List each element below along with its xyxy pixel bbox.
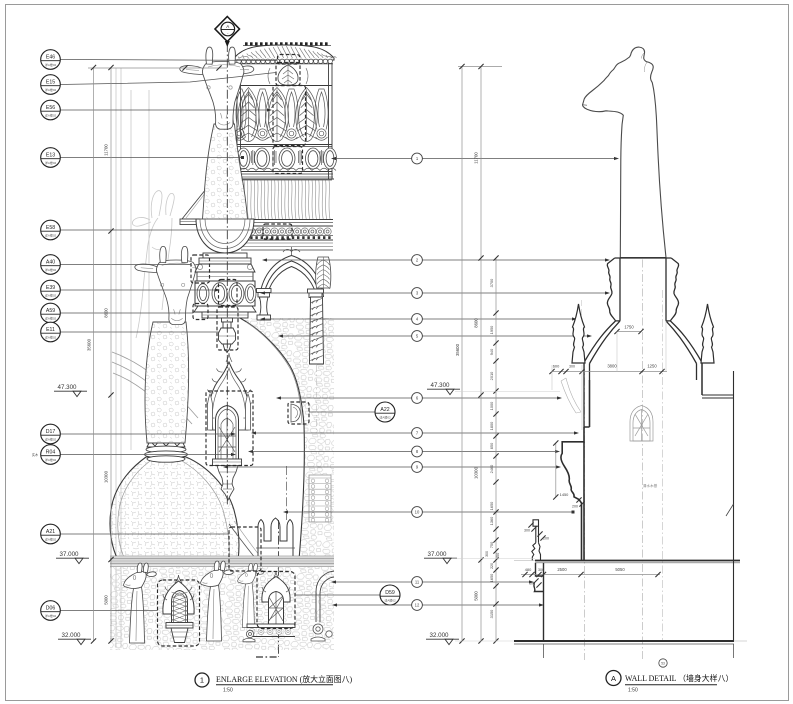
svg-text:A21: A21 [46, 529, 55, 535]
svg-text:10300: 10300 [474, 466, 479, 479]
svg-text:A40: A40 [46, 259, 55, 265]
svg-text:2010: 2010 [489, 371, 494, 380]
svg-text:详A楼02: 详A楼02 [45, 112, 57, 117]
svg-text:详A楼02: 详A楼02 [45, 613, 57, 618]
svg-text:详A楼02: 详A楼02 [379, 414, 391, 419]
svg-text:D17: D17 [46, 429, 56, 435]
svg-text:E46: E46 [46, 54, 55, 60]
svg-text:清水木基: 清水木基 [643, 483, 658, 488]
svg-text:详A楼02: 详A楼02 [45, 87, 57, 92]
svg-text:8600: 8600 [474, 318, 479, 328]
svg-text:12: 12 [415, 603, 420, 608]
svg-text:53: 53 [661, 662, 665, 666]
svg-text:详A楼02: 详A楼02 [45, 334, 57, 339]
svg-text:A22: A22 [380, 407, 389, 413]
svg-text:详A楼02: 详A楼02 [45, 267, 57, 272]
svg-text:32.000: 32.000 [62, 632, 81, 639]
svg-text:300: 300 [485, 551, 489, 557]
svg-text:300: 300 [524, 529, 530, 533]
svg-text:1450: 1450 [560, 492, 569, 497]
svg-text:实木: 实木 [32, 452, 39, 457]
svg-text:2460: 2460 [489, 464, 494, 473]
svg-text:11: 11 [415, 580, 420, 585]
svg-text:详A楼02: 详A楼02 [45, 160, 57, 165]
svg-text:详A楼02: 详A楼02 [45, 315, 57, 320]
svg-text:E56: E56 [46, 105, 55, 111]
svg-text:详A楼02: 详A楼02 [45, 232, 57, 237]
svg-text:1250: 1250 [647, 364, 657, 369]
svg-text:D59: D59 [385, 590, 395, 596]
svg-text:47.300: 47.300 [58, 384, 77, 391]
svg-text:1:50: 1:50 [223, 688, 233, 694]
svg-text:E39: E39 [46, 285, 55, 291]
svg-text:35600: 35600 [455, 343, 460, 356]
svg-text:32.000: 32.000 [430, 632, 449, 639]
svg-text:8600: 8600 [104, 308, 109, 318]
svg-text:1650: 1650 [489, 501, 494, 510]
svg-text:详A楼02: 详A楼02 [45, 436, 57, 441]
svg-text:R04: R04 [46, 449, 56, 455]
svg-text:480: 480 [525, 567, 532, 572]
svg-text:1950: 1950 [489, 325, 494, 334]
svg-text:详A楼02: 详A楼02 [45, 62, 57, 67]
svg-text:3150: 3150 [489, 609, 494, 618]
svg-text:200: 200 [572, 505, 578, 509]
svg-text:A59: A59 [46, 308, 55, 314]
svg-text:11700: 11700 [104, 144, 109, 156]
svg-text:WALL DETAIL （墙身大样八）: WALL DETAIL （墙身大样八） [625, 673, 733, 683]
svg-text:5050: 5050 [615, 567, 625, 572]
svg-text:E58: E58 [46, 225, 55, 231]
svg-text:详A楼02: 详A楼02 [384, 597, 396, 602]
svg-text:5000: 5000 [474, 591, 479, 601]
svg-text:940: 940 [489, 348, 494, 355]
svg-text:1800: 1800 [489, 421, 494, 430]
svg-text:450: 450 [495, 552, 500, 559]
svg-text:E13: E13 [46, 152, 55, 158]
svg-text:E15: E15 [46, 79, 55, 85]
svg-text:600: 600 [553, 364, 560, 369]
svg-text:47.300: 47.300 [431, 382, 450, 389]
svg-text:11700: 11700 [474, 152, 479, 164]
svg-text:850: 850 [489, 442, 494, 449]
svg-text:300: 300 [569, 365, 575, 369]
svg-text:220: 220 [490, 563, 494, 569]
svg-text:2500: 2500 [557, 567, 567, 572]
svg-text:35600: 35600 [87, 338, 92, 351]
svg-text:1: 1 [200, 676, 204, 685]
svg-text:750: 750 [489, 541, 494, 548]
svg-text:3700: 3700 [489, 278, 494, 287]
svg-text:5000: 5000 [104, 595, 109, 605]
svg-text:A: A [226, 24, 229, 29]
svg-text:详A楼02: 详A楼02 [45, 292, 57, 297]
svg-text:ENLARGE ELEVATION (放大立面图八): ENLARGE ELEVATION (放大立面图八) [216, 674, 353, 684]
svg-text:1750: 1750 [624, 325, 634, 330]
svg-text:37.000: 37.000 [428, 551, 447, 558]
svg-text:10300: 10300 [104, 470, 109, 483]
svg-text:A: A [611, 674, 616, 683]
svg-text:37.000: 37.000 [60, 551, 79, 558]
svg-text:300: 300 [538, 568, 544, 572]
svg-text:10: 10 [415, 510, 420, 515]
svg-text:1:50: 1:50 [628, 688, 638, 694]
svg-text:1360: 1360 [489, 516, 494, 525]
svg-text:详A楼02: 详A楼02 [45, 536, 57, 541]
svg-text:详A楼02: 详A楼02 [45, 457, 57, 462]
svg-text:E11: E11 [46, 327, 55, 333]
svg-text:1650: 1650 [489, 573, 494, 582]
svg-text:3800: 3800 [607, 364, 617, 369]
svg-text:D06: D06 [46, 605, 56, 611]
svg-text:1000: 1000 [489, 401, 494, 410]
